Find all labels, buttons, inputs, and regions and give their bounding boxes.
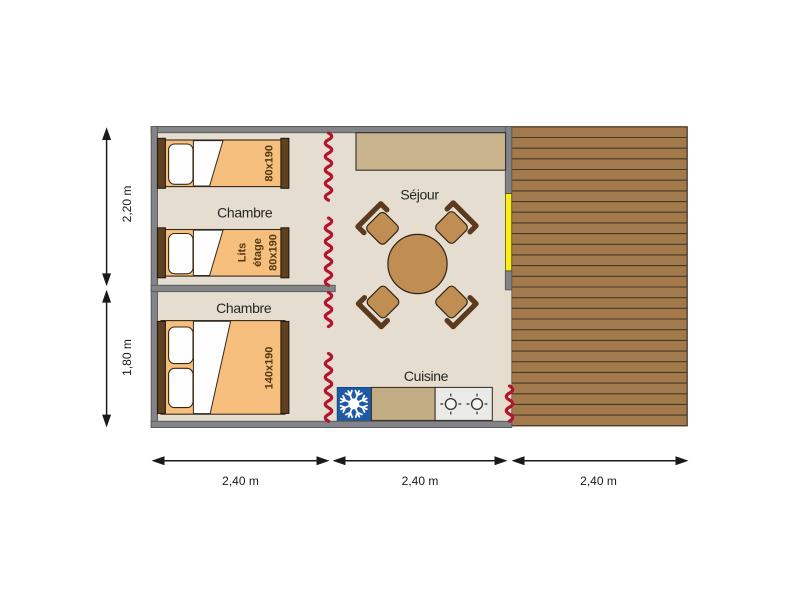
svg-text:1,80 m: 1,80 m [120,339,134,376]
svg-text:Cuisine: Cuisine [404,368,449,384]
svg-text:Séjour: Séjour [400,187,439,203]
svg-text:Lits: Lits [237,243,249,263]
svg-text:140x190: 140x190 [263,347,275,390]
svg-text:80x190: 80x190 [263,145,275,182]
svg-text:2,40 m: 2,40 m [580,474,617,488]
svg-text:Chambre: Chambre [217,205,273,221]
svg-text:Chambre: Chambre [216,300,272,316]
svg-text:80x190: 80x190 [267,234,279,271]
svg-text:étage: étage [252,238,264,267]
svg-text:2,40 m: 2,40 m [222,474,259,488]
svg-text:2,40 m: 2,40 m [402,474,439,488]
svg-text:2,20 m: 2,20 m [120,186,134,223]
